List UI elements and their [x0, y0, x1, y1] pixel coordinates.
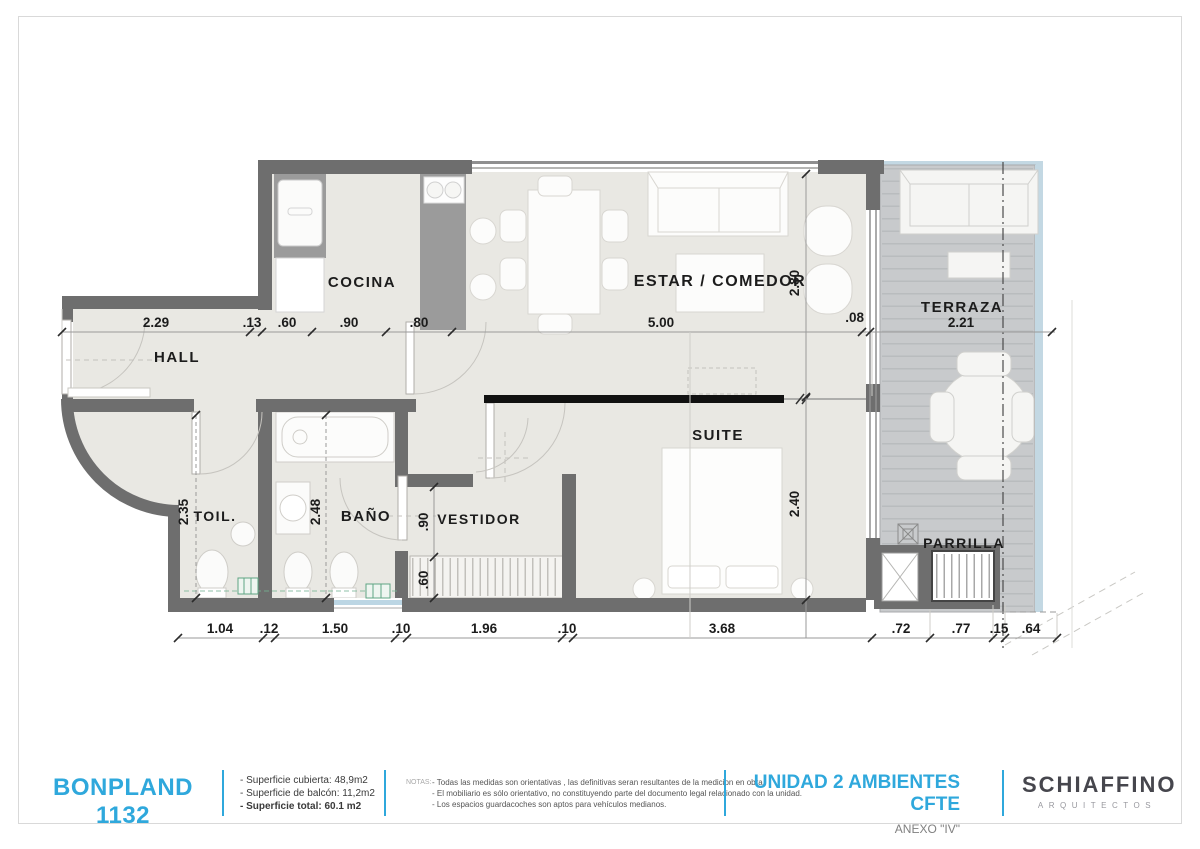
project-title: BONPLAND 1132 — [40, 774, 206, 830]
unit-block: UNIDAD 2 AMBIENTES CFTE ANEXO "IV" — [730, 772, 960, 836]
armchair — [804, 206, 852, 256]
bidet — [330, 552, 358, 592]
area-balcon: - Superficie de balcón: 11,2m2 — [240, 787, 375, 800]
dim-top-7: 2.21 — [948, 315, 975, 330]
dim-bottom-4: 1.96 — [471, 621, 498, 636]
closet — [410, 556, 564, 598]
dim-bottom-2: 1.50 — [322, 621, 348, 636]
divider — [1002, 770, 1004, 816]
dim-bottom-1: .12 — [260, 621, 279, 636]
dim-bottom-7: .72 — [892, 621, 911, 636]
dim-top-5: 5.00 — [648, 315, 674, 330]
dim-bottom-3: .10 — [392, 621, 411, 636]
corridor-door — [406, 322, 414, 394]
room-label-cocina: COCINA — [328, 274, 396, 291]
dim-top-6: .08 — [845, 310, 864, 325]
dim-bottom-10: .64 — [1022, 621, 1041, 636]
room-label-bano: BAÑO — [341, 507, 391, 525]
dim-bottom-5: .10 — [558, 621, 577, 636]
room-label-toil: TOIL. — [193, 508, 236, 524]
area-summary: - Superficie cubierta: 48,9m2 - Superfic… — [240, 774, 375, 813]
dim-toil-depth: 2.35 — [176, 498, 191, 525]
washer — [278, 180, 322, 246]
area-total: - Superficie total: 60.1 m2 — [240, 800, 375, 813]
dim-closet-depth: .60 — [416, 571, 431, 590]
room-label-parrilla: PARRILLA — [923, 535, 1005, 551]
annex-label: ANEXO "IV" — [730, 822, 960, 836]
room-label-hall: HALL — [154, 349, 200, 366]
floor-plan: 2.29 .13 .60 .90 .80 5.00 .08 2.21 1.04 … — [0, 0, 1200, 760]
room-label-terraza: TERRAZA — [921, 299, 1003, 316]
drain-icon — [898, 524, 918, 544]
room-label-vestidor: VESTIDOR — [437, 511, 521, 527]
dim-top-3: .90 — [340, 315, 359, 330]
dim-top-2: .60 — [278, 315, 297, 330]
firm-name: SCHIAFFINO — [1022, 772, 1172, 798]
divider — [724, 770, 726, 816]
dim-bottom-0: 1.04 — [207, 621, 234, 636]
armchair — [804, 264, 852, 314]
dining-table — [528, 190, 600, 314]
room-label-estar: ESTAR / COMEDOR — [634, 273, 806, 290]
kitchen-sink — [276, 258, 324, 312]
room-label-suite: SUITE — [692, 427, 744, 444]
firm-subtitle: ARQUITECTOS — [1022, 801, 1172, 810]
toilet-sink — [231, 522, 255, 546]
bathtub — [276, 412, 394, 462]
drawing-sheet: 2.29 .13 .60 .90 .80 5.00 .08 2.21 1.04 … — [0, 0, 1200, 849]
divider — [222, 770, 224, 816]
toilet-wc — [196, 550, 228, 594]
dim-bottom-9: .15 — [990, 621, 1009, 636]
suite-door — [486, 403, 494, 478]
dim-bottom-6: 3.68 — [709, 621, 736, 636]
bath-wc — [284, 552, 312, 592]
dim-top-0: 2.29 — [143, 315, 169, 330]
window — [328, 598, 408, 612]
divider — [384, 770, 386, 816]
outdoor-table — [948, 252, 1010, 278]
unit-title: UNIDAD 2 AMBIENTES CFTE — [730, 772, 960, 816]
dim-bano-depth: 2.48 — [308, 498, 323, 525]
title-block: BONPLAND 1132 - Superficie cubierta: 48,… — [0, 762, 1200, 822]
dim-top-1: .13 — [243, 315, 262, 330]
dim-top-4: .80 — [410, 315, 429, 330]
grill — [932, 551, 994, 601]
bath-door — [398, 476, 407, 540]
notes-label: NOTAS: — [406, 779, 432, 786]
area-cubierta: - Superficie cubierta: 48,9m2 — [240, 774, 375, 787]
service-block — [874, 545, 1000, 609]
firm-logo: SCHIAFFINO ARQUITECTOS — [1022, 772, 1172, 810]
nightstand — [633, 578, 655, 600]
dim-vestidor-opening: .90 — [416, 513, 431, 532]
dim-bottom-8: .77 — [952, 621, 971, 636]
dim-suite-width: 2.40 — [787, 491, 802, 517]
